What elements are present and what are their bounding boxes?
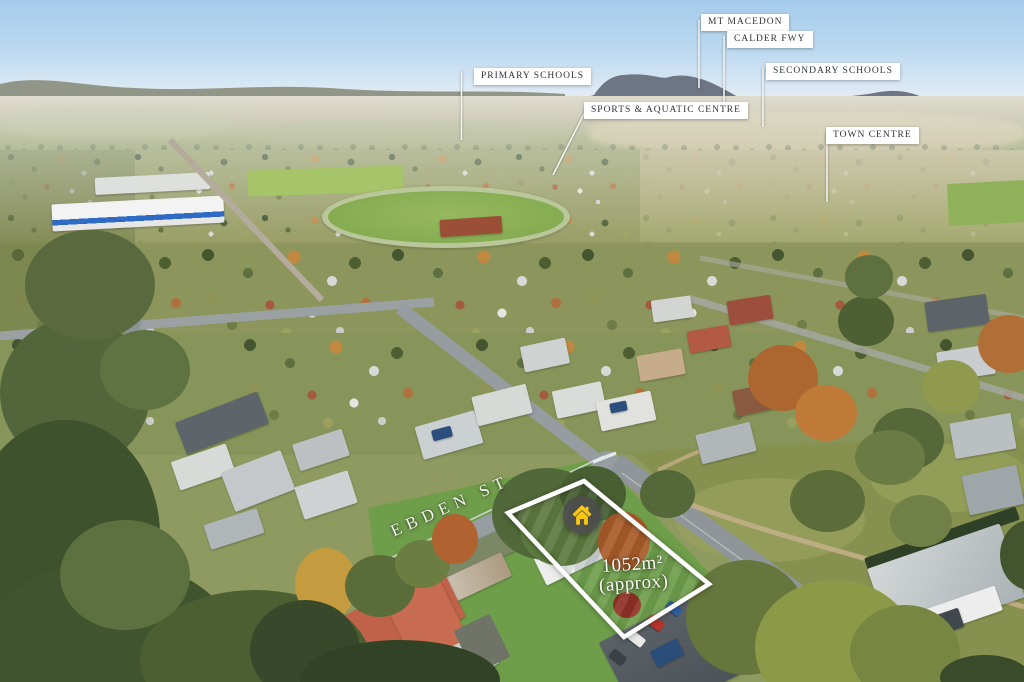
aerial-photo-scene: 1052m² (approx) EBDEN ST MT MACEDON CALD… <box>0 0 1024 682</box>
property-marker <box>563 496 601 534</box>
callout-town-centre: TOWN CENTRE <box>826 127 919 144</box>
callout-secondary-schools: SECONDARY SCHOOLS <box>766 63 900 80</box>
property-boundary <box>0 0 1024 682</box>
callout-primary-schools: PRIMARY SCHOOLS <box>474 68 591 85</box>
callout-sports-aquatic-centre: SPORTS & AQUATIC CENTRE <box>584 102 748 119</box>
home-icon <box>569 502 595 528</box>
callout-mt-macedon: MT MACEDON <box>701 14 789 31</box>
callout-calder-fwy: CALDER FWY <box>727 31 813 48</box>
